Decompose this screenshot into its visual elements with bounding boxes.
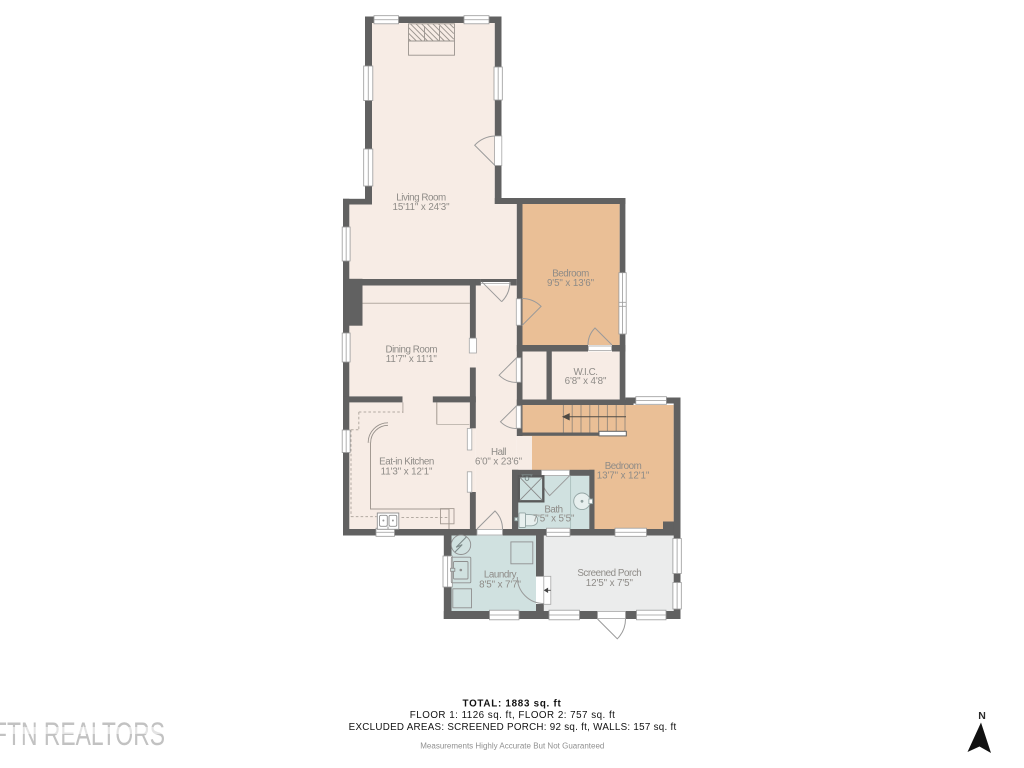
- svg-text:7'5" x 5'5": 7'5" x 5'5": [533, 513, 575, 524]
- svg-text:6'8" x 4'8": 6'8" x 4'8": [565, 376, 607, 387]
- svg-text:11'7" x 11'1": 11'7" x 11'1": [386, 354, 438, 365]
- svg-text:13'7" x 12'1": 13'7" x 12'1": [597, 470, 650, 481]
- svg-text:N: N: [978, 710, 986, 722]
- svg-text:TOTAL: 1883 sq. ft: TOTAL: 1883 sq. ft: [463, 698, 562, 709]
- svg-text:12'5" x 7'5": 12'5" x 7'5": [586, 578, 634, 589]
- svg-text:EXCLUDED AREAS: SCREENED PORCH: EXCLUDED AREAS: SCREENED PORCH: 92 sq. f…: [349, 722, 677, 733]
- svg-text:8'5" x 7'7": 8'5" x 7'7": [479, 579, 521, 590]
- svg-text:FLOOR 1: 1126 sq. ft, FLOOR 2:: FLOOR 1: 1126 sq. ft, FLOOR 2: 757 sq. f…: [410, 710, 616, 721]
- svg-text:9'5" x 13'6": 9'5" x 13'6": [547, 278, 595, 289]
- svg-text:6'0" x 23'6": 6'0" x 23'6": [475, 457, 523, 468]
- svg-text:15'11" x 24'3": 15'11" x 24'3": [392, 202, 450, 213]
- svg-text:11'3" x 12'1": 11'3" x 12'1": [381, 466, 433, 477]
- svg-text:Measurements Highly Accurate B: Measurements Highly Accurate But Not Gua…: [420, 741, 604, 750]
